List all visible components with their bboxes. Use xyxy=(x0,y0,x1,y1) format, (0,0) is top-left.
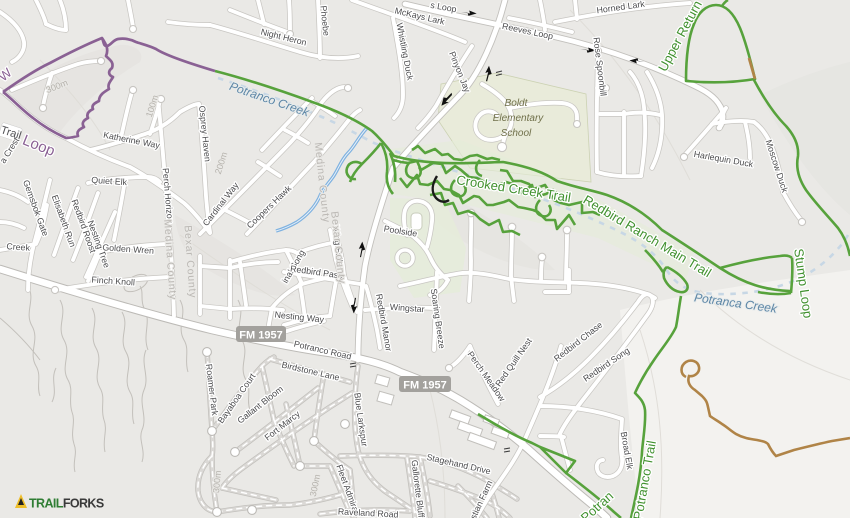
svg-text:FM 1957: FM 1957 xyxy=(239,330,282,342)
svg-text:School: School xyxy=(501,128,532,139)
svg-text:Raveland Road: Raveland Road xyxy=(338,506,399,518)
svg-text:FM 1957: FM 1957 xyxy=(403,380,446,392)
svg-text:Elementary: Elementary xyxy=(493,113,545,124)
svg-text:300m: 300m xyxy=(211,470,223,493)
svg-text:Creek: Creek xyxy=(6,241,31,253)
svg-text:Boldt: Boldt xyxy=(505,98,529,109)
svg-text:TRAILFORKS: TRAILFORKS xyxy=(29,497,104,511)
